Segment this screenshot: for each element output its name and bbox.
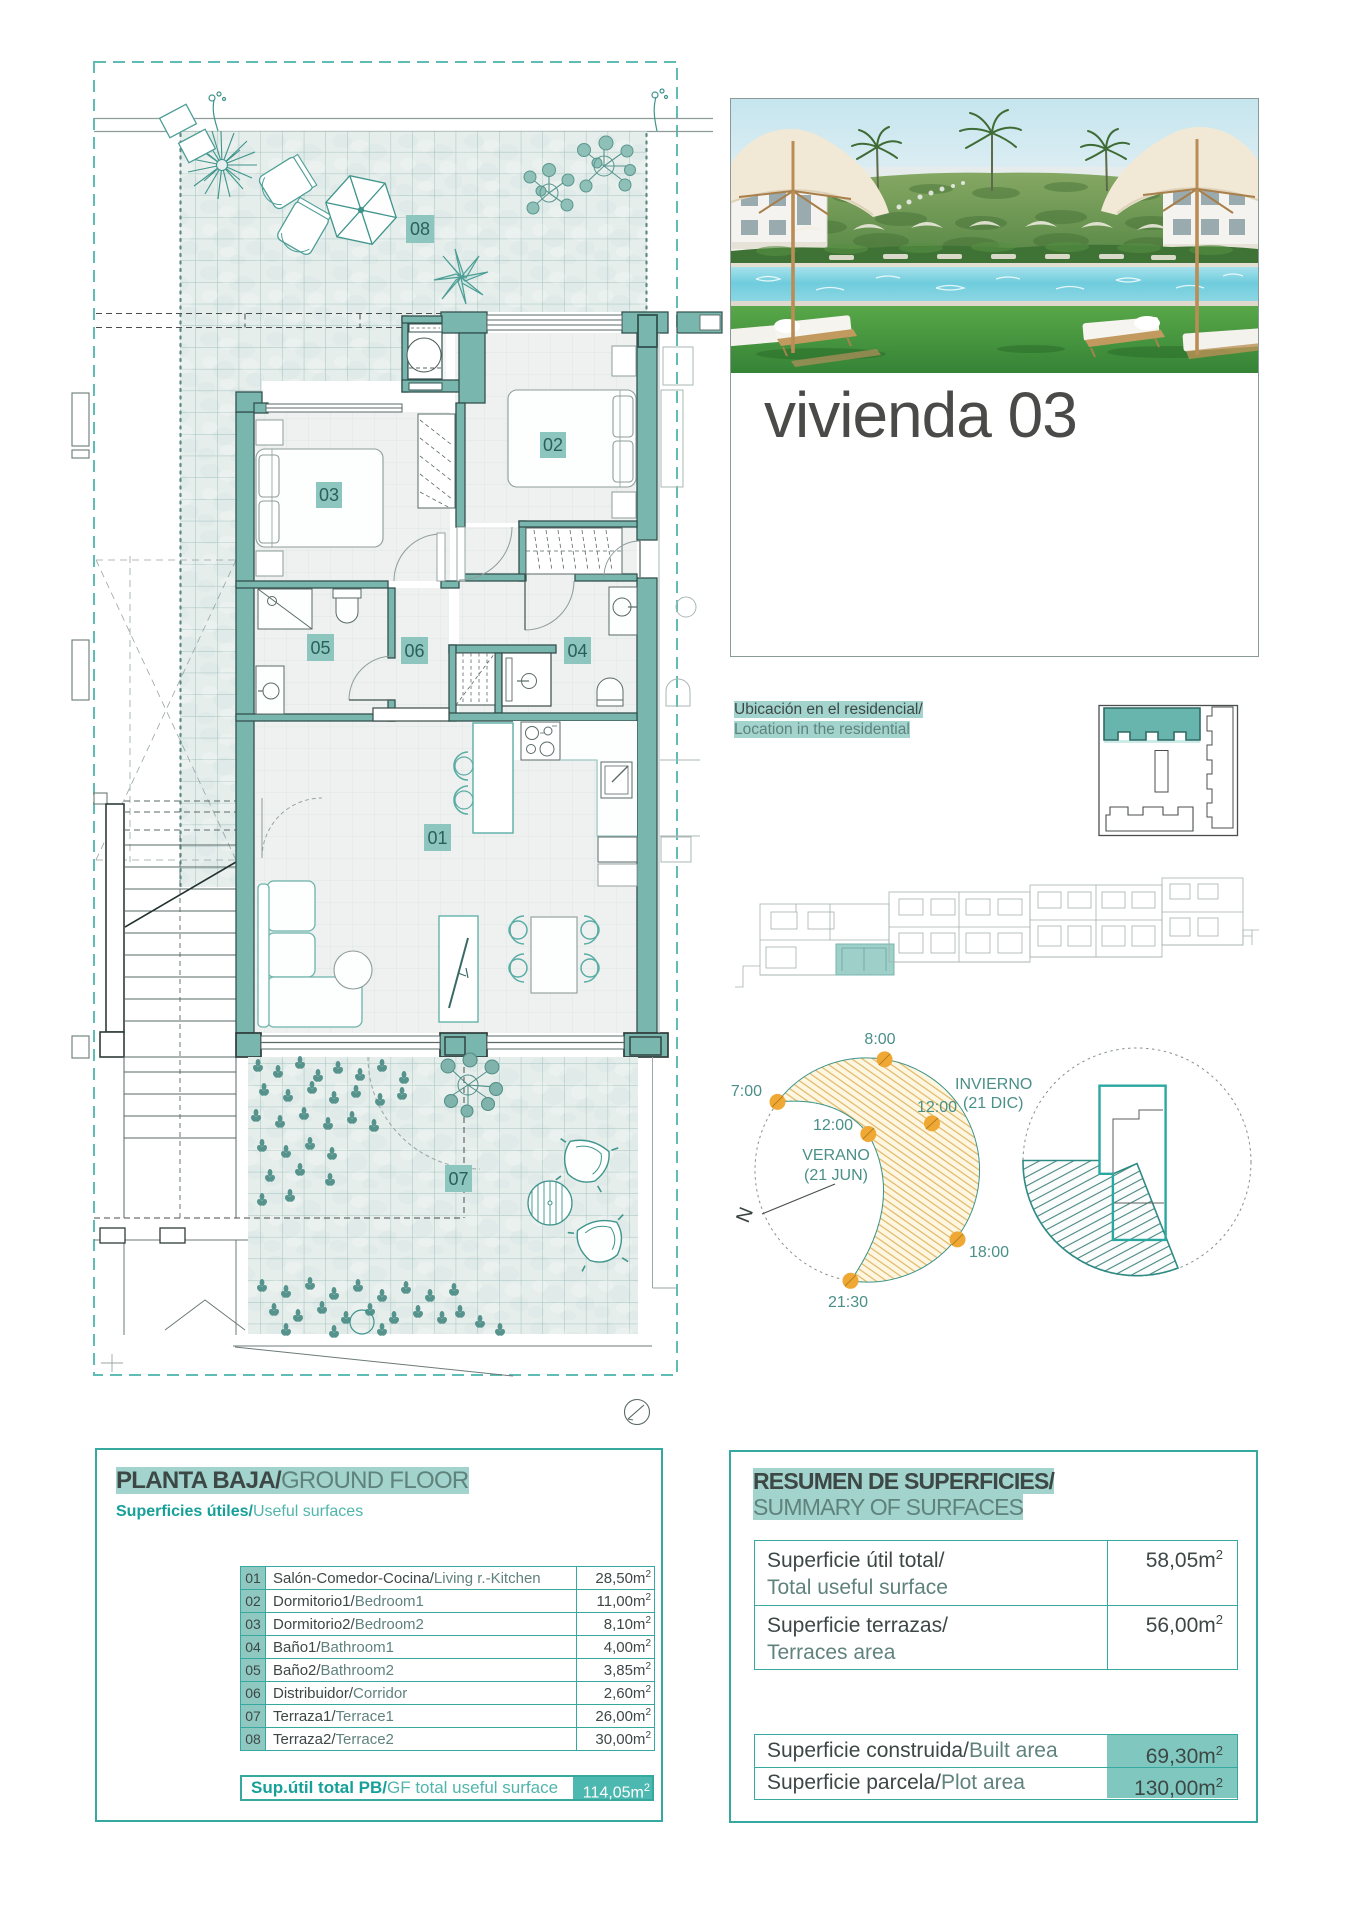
svg-text:7:00: 7:00: [731, 1083, 762, 1100]
svg-text:12:00: 12:00: [917, 1099, 957, 1116]
svg-text:06: 06: [404, 641, 424, 661]
svg-text:03: 03: [319, 485, 339, 505]
svg-text:04: 04: [567, 641, 587, 661]
svg-text:21:30: 21:30: [828, 1294, 868, 1311]
svg-text:8:00: 8:00: [864, 1031, 895, 1048]
svg-text:12:00: 12:00: [813, 1117, 853, 1134]
svg-text:VERANO: VERANO: [802, 1147, 870, 1164]
svg-text:18:00: 18:00: [969, 1244, 1009, 1261]
svg-text:INVIERNO: INVIERNO: [955, 1076, 1032, 1093]
svg-text:N: N: [732, 1204, 758, 1226]
svg-text:07: 07: [448, 1169, 468, 1189]
svg-text:08: 08: [410, 219, 430, 239]
svg-text:(21 JUN): (21 JUN): [804, 1167, 868, 1184]
svg-text:02: 02: [543, 435, 563, 455]
svg-text:01: 01: [427, 828, 447, 848]
svg-text:(21 DIC): (21 DIC): [963, 1095, 1023, 1112]
svg-text:05: 05: [310, 638, 330, 658]
